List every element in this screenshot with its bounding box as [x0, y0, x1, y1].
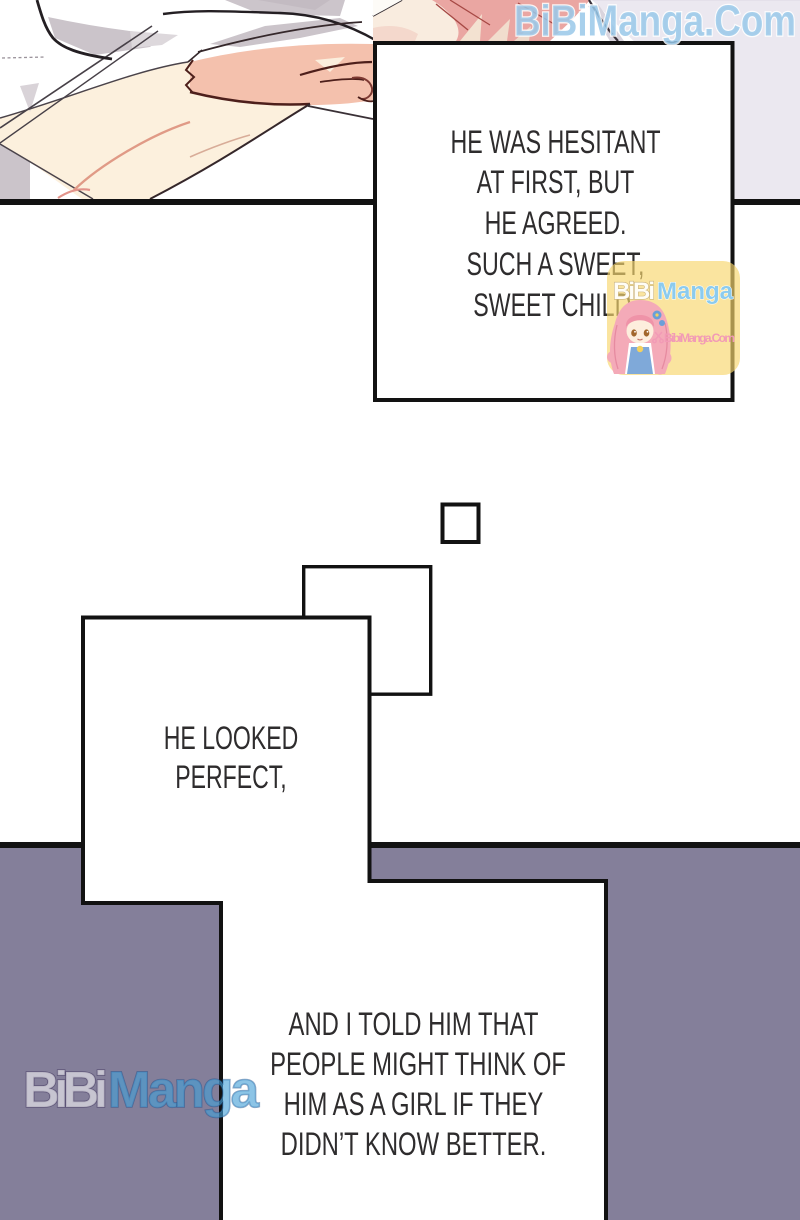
svg-text:BiBi: BiBi: [23, 1061, 108, 1118]
svg-text:BiBiManga.Com: BiBiManga.Com: [514, 0, 796, 46]
svg-text:Manga: Manga: [108, 1061, 260, 1118]
svg-text:Manga: Manga: [657, 278, 734, 305]
svg-text:BibiManga.Com: BibiManga.Com: [664, 331, 735, 345]
